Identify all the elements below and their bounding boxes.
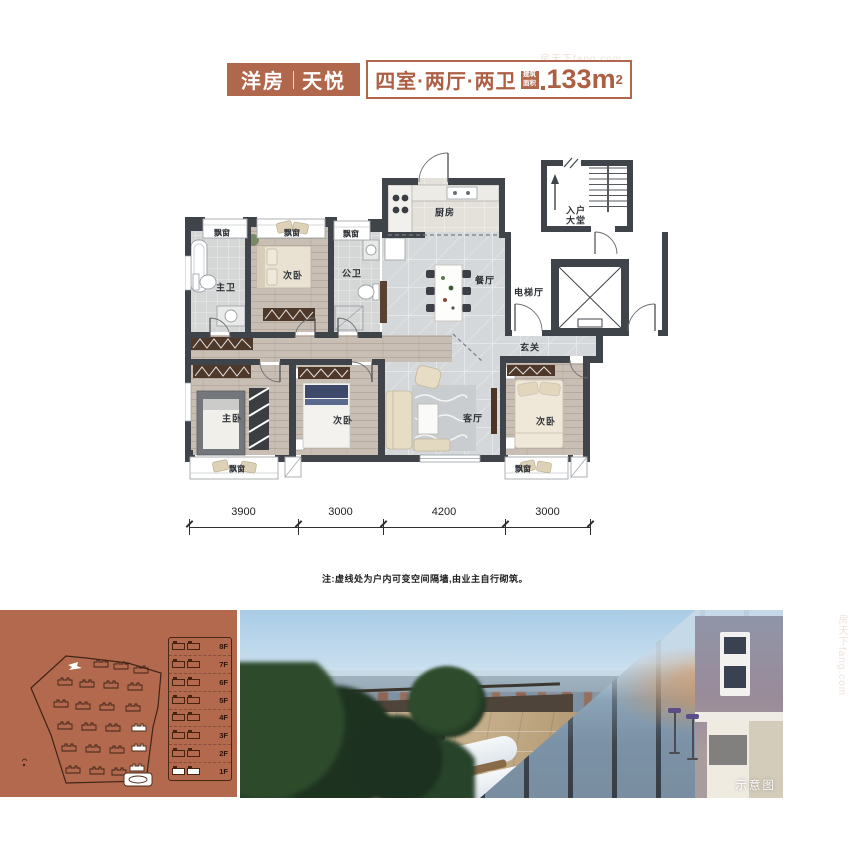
room-label-master-bedroom: 主卧 (222, 412, 242, 425)
floor-row: 8F (169, 638, 231, 656)
room-label-bay-window: 飘窗 (343, 229, 359, 240)
entry-hall-line2: 大堂 (566, 216, 586, 226)
building-glyph (172, 732, 185, 739)
building-glyph (172, 697, 185, 704)
stool-base (669, 752, 680, 754)
floor-row: 7F (169, 656, 231, 674)
floor-stack: 8F 7F 6F 5F 4F 3F 2F 1F (168, 637, 232, 781)
dimension-value: 3000 (298, 506, 383, 518)
room-label-bedroom: 次卧 (536, 415, 556, 428)
header-name: 天悦 (302, 65, 346, 94)
area-badge: 建筑 面积 (521, 71, 539, 89)
header-layout: 四室·两厅·两卫 (375, 65, 516, 94)
building-glyph (187, 750, 200, 757)
floor-label: 7F (219, 660, 228, 669)
room-label-master-bath: 主卫 (216, 281, 236, 294)
bar-stool (668, 708, 681, 760)
room-label-kitchen: 厨房 (435, 206, 455, 219)
header-series: 洋房 (241, 65, 285, 94)
floor-row: 6F (169, 674, 231, 692)
bar-stool (686, 714, 699, 766)
room-label-living: 客厅 (463, 412, 483, 425)
dimension-baseline (189, 527, 590, 528)
building-glyph (172, 679, 185, 686)
page: 房天下fang.com 房天下fang.com 房天下fang.com 洋房 天… (0, 0, 850, 850)
room-label-elevator-hall: 电梯厅 (514, 286, 544, 299)
room-label-bay-window: 飘窗 (515, 464, 531, 475)
room-label-bay-window: 飘窗 (229, 464, 245, 475)
interior-kitchen (695, 616, 783, 798)
stool-leg (674, 713, 676, 753)
area-badge-line1: 建筑 (523, 71, 536, 79)
floor-row: 4F (169, 710, 231, 728)
north-plane-icon (68, 662, 82, 670)
elevator-shaft (551, 259, 629, 336)
floor-label: 1F (219, 767, 228, 776)
building-glyph (172, 661, 185, 668)
stool-base (687, 758, 698, 760)
stool-leg (692, 719, 694, 759)
building-glyph (172, 750, 185, 757)
building-glyph (187, 661, 200, 668)
dimension-line: 3900 3000 4200 3000 (185, 498, 605, 544)
oven (720, 632, 750, 696)
building-glyph-highlight (187, 768, 200, 775)
watermark: 房天下fang.com (834, 614, 849, 696)
area-badge-line2: 面积 (523, 80, 536, 88)
building-glyph (187, 714, 200, 721)
floorplan-drawing (185, 148, 675, 496)
room-label-public-bath: 公卫 (342, 267, 362, 280)
terrace-bush (408, 666, 486, 738)
building-glyph (187, 643, 200, 650)
building-glyph (172, 643, 185, 650)
room-label-entry-hall: 入户 大堂 (566, 206, 586, 227)
building-glyph (187, 679, 200, 686)
floor-row: 5F (169, 692, 231, 710)
floor-label: 6F (219, 678, 228, 687)
floorplan: 飘窗 飘窗 飘窗 主卫 次卧 公卫 厨房 入户 大堂 餐厅 电梯厅 玄关 客厅 … (185, 148, 675, 496)
wall-break (563, 157, 581, 169)
area-sup: 2 (616, 72, 623, 87)
dimension-value: 4200 (383, 506, 505, 518)
area-value: 133m (547, 66, 616, 93)
room-label-dining: 餐厅 (475, 274, 495, 287)
building-glyph (187, 732, 200, 739)
floor-row: 2F (169, 745, 231, 763)
floor-label: 5F (219, 696, 228, 705)
area-dot (541, 86, 545, 90)
dimension-value: 3000 (505, 506, 590, 518)
siteplan-panel: 8F 7F 6F 5F 4F 3F 2F 1F (0, 610, 237, 797)
header-divider (293, 71, 294, 89)
photo-caption: 示意图 (736, 777, 777, 793)
siteplan-map (6, 625, 166, 790)
floor-label: 8F (219, 642, 228, 651)
header-series-box: 洋房 天悦 (227, 63, 360, 96)
building-glyph-highlight (172, 768, 185, 775)
building-glyph (172, 714, 185, 721)
room-label-bay-window: 飘窗 (214, 228, 230, 239)
room-label-bedroom: 次卧 (283, 269, 303, 282)
building-glyph (187, 697, 200, 704)
floor-label: 2F (219, 749, 228, 758)
floor-label: 3F (219, 731, 228, 740)
room-label-bedroom: 次卧 (333, 414, 353, 427)
dimension-value: 3900 (189, 506, 298, 518)
plan-note: 注:虚线处为户内可变空间隔墙,由业主自行砌筑。 (185, 572, 665, 585)
room-label-foyer: 玄关 (520, 341, 540, 354)
terrace-photo: 示意图 (240, 610, 783, 798)
floor-row: 1F (169, 763, 231, 780)
room-label-bay-window: 飘窗 (284, 228, 300, 239)
floor-row: 3F (169, 727, 231, 745)
header-spec-box: 四室·两厅·两卫 建筑 面积 133m 2 (366, 60, 632, 99)
floor-label: 4F (219, 713, 228, 722)
entry-hall-line1: 入户 (566, 206, 586, 216)
